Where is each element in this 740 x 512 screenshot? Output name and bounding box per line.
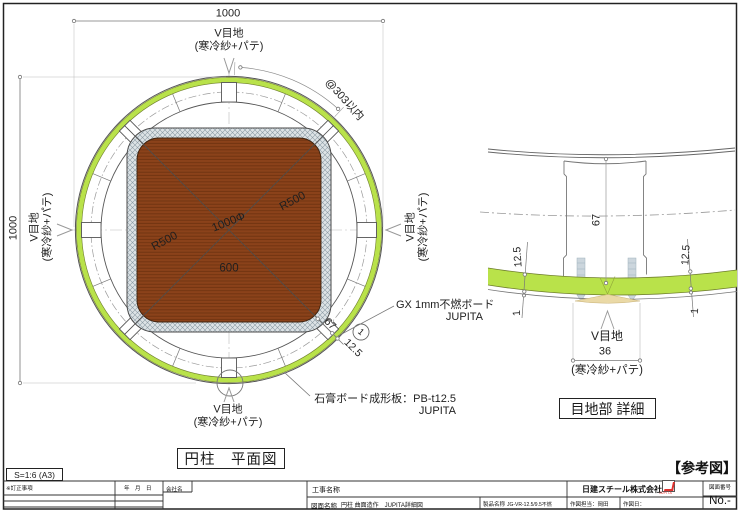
drawn-date-label: 作図日： bbox=[623, 500, 645, 508]
company-name: 日建スチール株式会社 bbox=[582, 484, 662, 495]
vjoint-label-left: V目地 (寒冷紗+パテ) bbox=[28, 193, 53, 262]
detail-vjoint-note: (寒冷紗+パテ) bbox=[571, 364, 643, 377]
pb-board-label: 石膏ボード成形板：PB-t12.5 JUPITA bbox=[310, 393, 456, 418]
scale-box: S=1:6 (A3) bbox=[6, 468, 63, 481]
pb-leader bbox=[284, 372, 310, 396]
drawing-number-value: No.- bbox=[704, 495, 736, 507]
date-header: 年 月 日 bbox=[124, 484, 152, 492]
vjoint-bottom-line2: (寒冷紗+パテ) bbox=[194, 416, 263, 429]
detail-dim-1-left: 1 bbox=[511, 310, 523, 317]
drafter-label: 作図担当：岡田 bbox=[570, 500, 609, 508]
vjoint-label-bottom: V目地 (寒冷紗+パテ) bbox=[194, 403, 263, 428]
pb-board-label-line2: JUPITA bbox=[310, 405, 456, 417]
detail-dim-1-right: 1 bbox=[689, 308, 701, 315]
vjoint-left-line1: V目地 bbox=[28, 193, 41, 262]
vjoint-bottom-line1: V目地 bbox=[194, 403, 263, 416]
drawing-sheet: 1000 V目地 (寒冷紗+パテ) @303以内 1000 V目地 (寒冷紗+パ… bbox=[0, 0, 740, 512]
drawing-number-header: 図面番号 bbox=[705, 483, 735, 491]
vjoint-top-line2: (寒冷紗+パテ) bbox=[195, 40, 264, 53]
vjoint-right-line2: (寒冷紗+パテ) bbox=[417, 193, 430, 262]
dim-top-1000: 1000 bbox=[216, 8, 240, 21]
project-label: 工事名称 bbox=[312, 485, 340, 495]
product-label: 製品名称 bbox=[483, 500, 505, 508]
vjoint-label-right: V目地 (寒冷紗+パテ) bbox=[404, 193, 429, 262]
drawing-value: 円柱 曲面造作 JUPITA詳細図 bbox=[341, 500, 423, 509]
detail-dim-12-5-right: 12.5 bbox=[679, 244, 692, 265]
drawing-label: 図面名称 bbox=[311, 500, 337, 510]
sheet-border bbox=[4, 4, 737, 510]
company-header: 会社名 bbox=[166, 485, 183, 493]
revision-header: ※訂正事項 bbox=[6, 484, 33, 492]
jupita-logo-text: JUPITA bbox=[659, 491, 672, 495]
detail-dim-12-5-left: 12.5 bbox=[511, 246, 524, 267]
core-dim-label: 600 bbox=[219, 262, 238, 275]
jupita-logo: JUPITA bbox=[662, 480, 676, 495]
vjoint-right-line1: V目地 bbox=[404, 193, 417, 262]
vjoint-label-top: V目地 (寒冷紗+パテ) bbox=[195, 27, 264, 52]
pb-board-label-line1: 石膏ボード成形板：PB-t12.5 bbox=[310, 393, 456, 405]
cad-linework bbox=[0, 0, 740, 512]
vjoint-top-line1: V目地 bbox=[195, 27, 264, 40]
jupita-logo-icon bbox=[664, 482, 675, 491]
plan-title-box: 円柱 平面図 bbox=[177, 448, 285, 469]
detail-title-box: 目地部 詳細 bbox=[559, 398, 656, 419]
reference-note: 【参考図】 bbox=[655, 458, 737, 478]
gx-board-label: GX 1mm不燃ボード JUPITA bbox=[396, 299, 483, 324]
detail-vjoint-label: V目地 bbox=[591, 330, 623, 344]
detail-dim-67: 67 bbox=[591, 214, 604, 226]
detail-vjoint-width: 36 bbox=[599, 346, 611, 359]
vjoint-left-line2: (寒冷紗+パテ) bbox=[41, 193, 54, 262]
gx-board-label-line2: JUPITA bbox=[396, 311, 483, 323]
product-value: JG-VR-12.5/9.5不燃 bbox=[507, 501, 552, 508]
gx-board-label-line1: GX 1mm不燃ボード bbox=[396, 299, 483, 311]
dim-left-1000: 1000 bbox=[8, 216, 21, 240]
